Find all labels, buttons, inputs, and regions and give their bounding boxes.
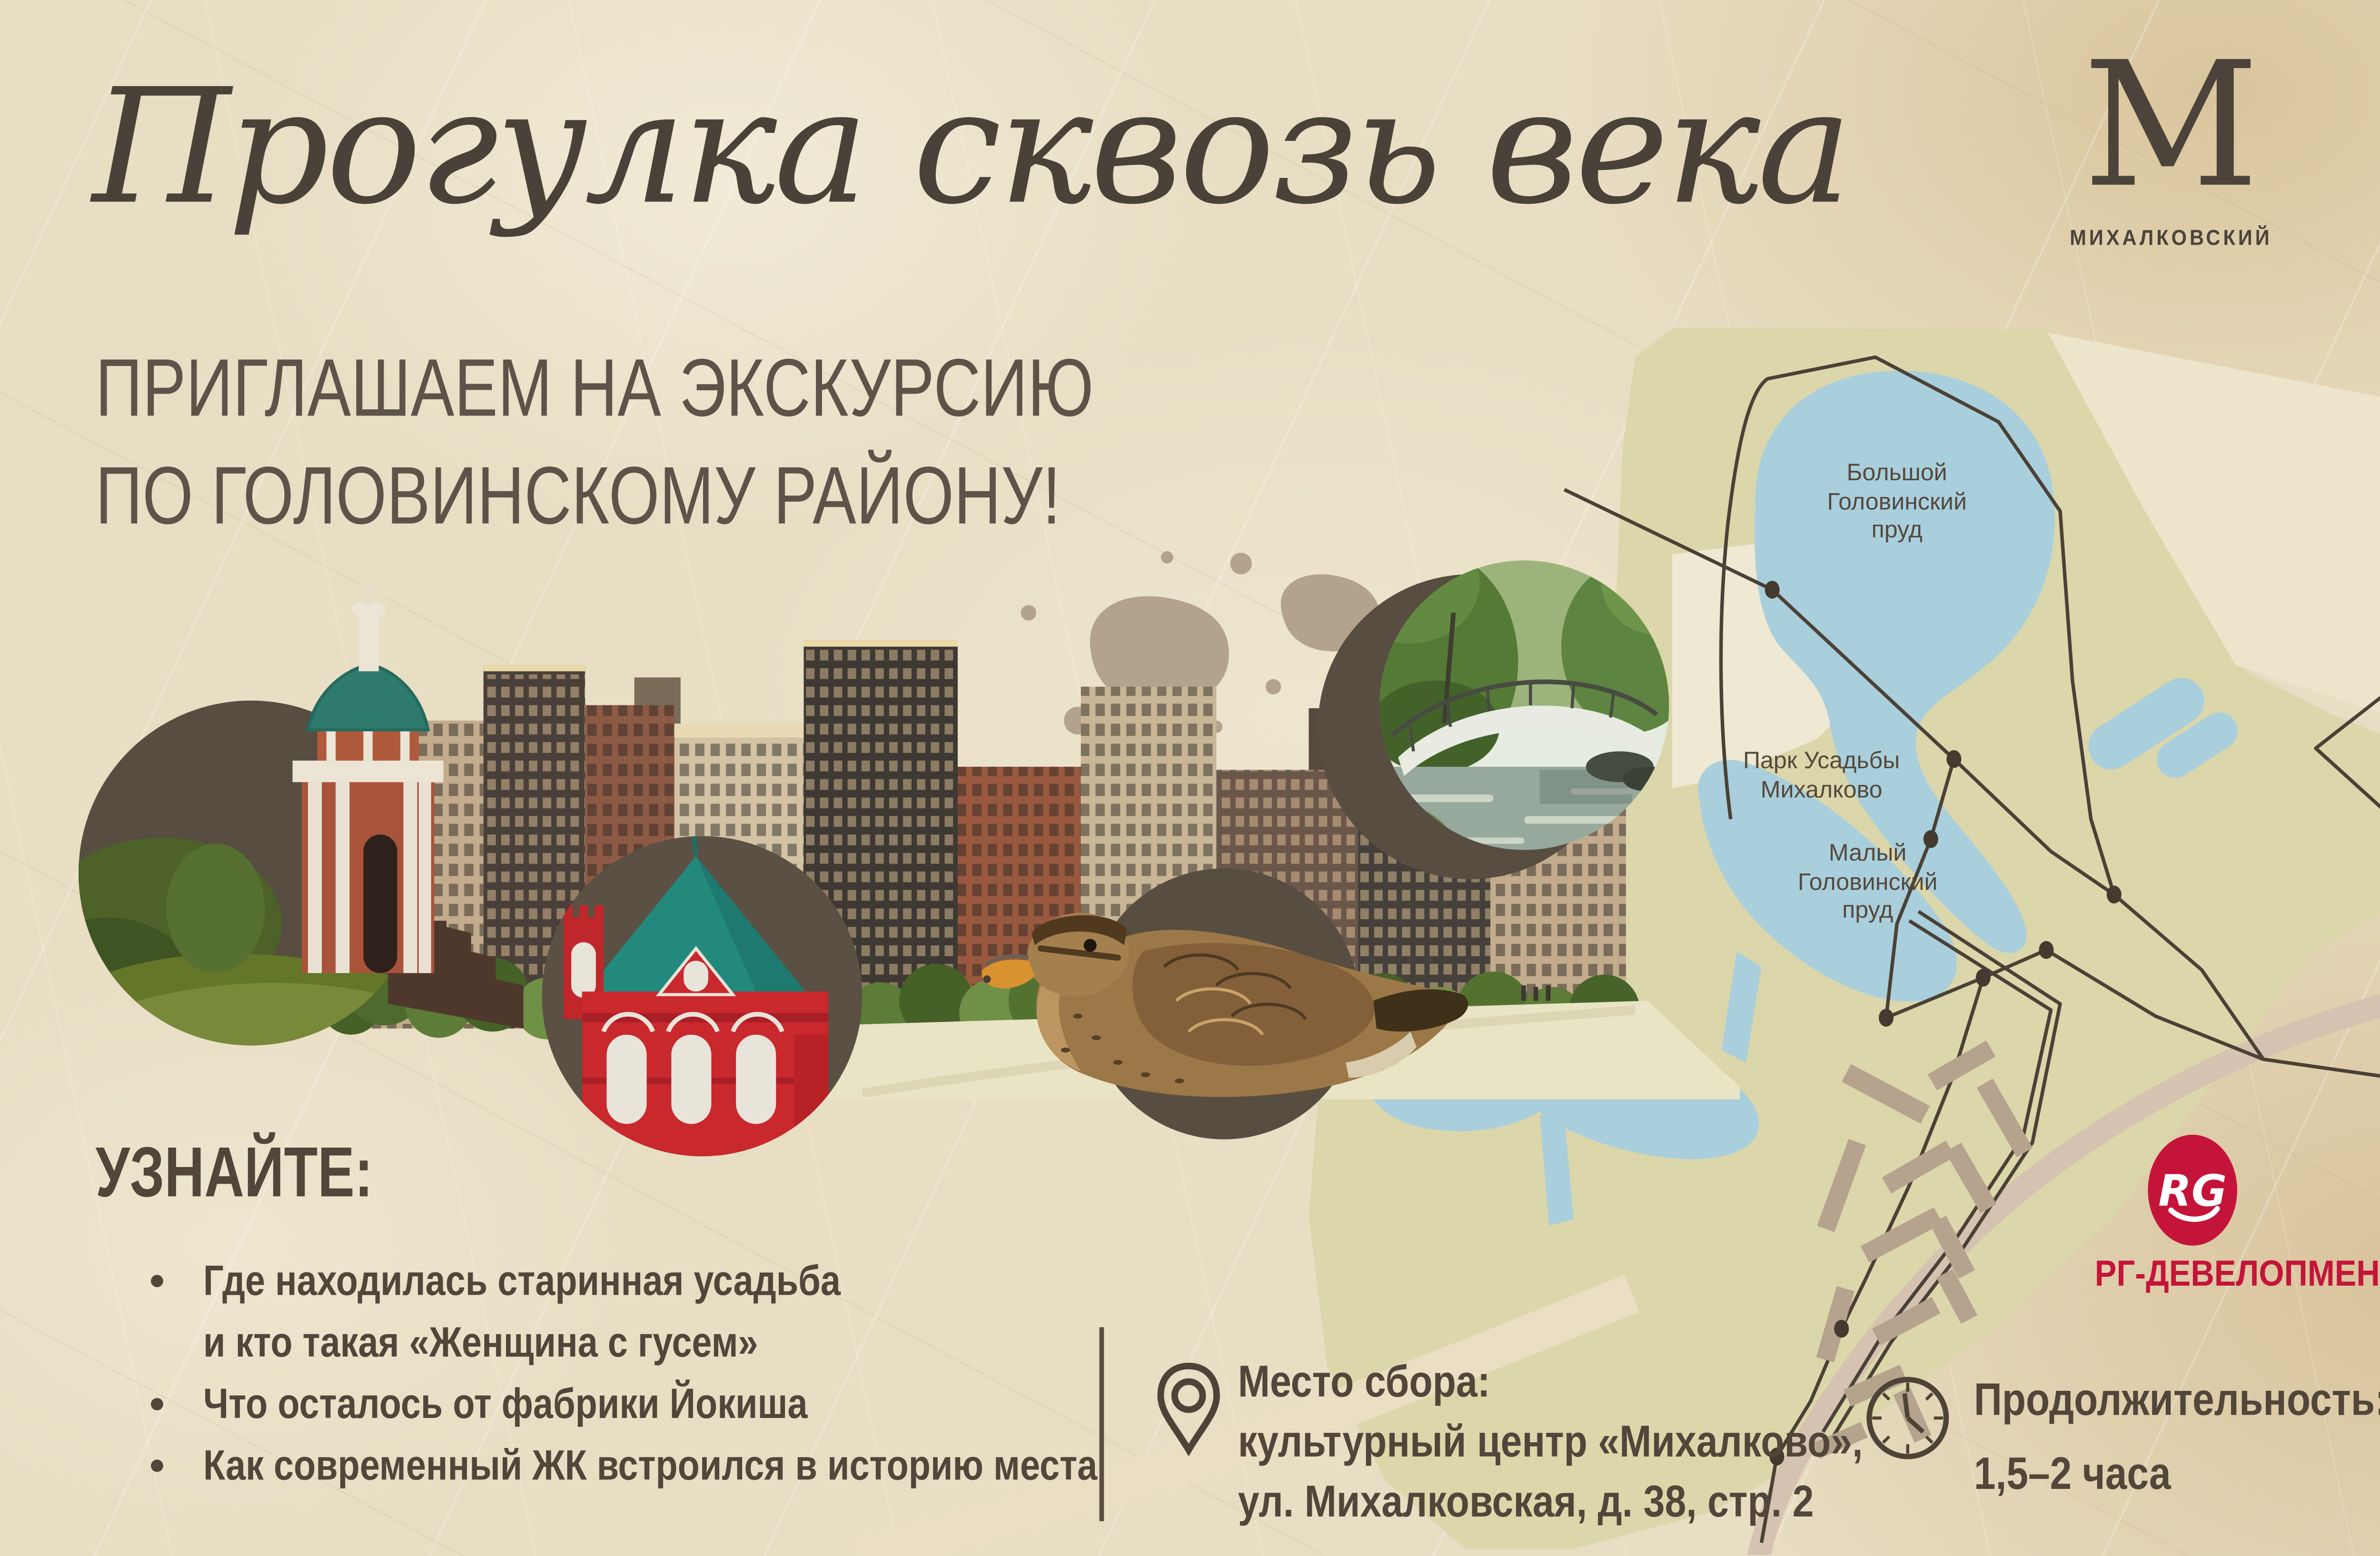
brand-logo: М МИХАЛКОВСКИЙ bbox=[2048, 40, 2294, 249]
pond-label-line: Головинский bbox=[1782, 489, 2013, 517]
bullet-dot bbox=[151, 1459, 163, 1472]
list-item: Как современный ЖК встроился в историю м… bbox=[148, 1435, 1164, 1497]
bullet-dot bbox=[151, 1275, 163, 1287]
footer-divider bbox=[1100, 1327, 1103, 1521]
park-label-line: Парк Усадьбы bbox=[1706, 748, 1937, 777]
list-item-text: Что осталось от фабрики Йокиша bbox=[203, 1373, 1020, 1435]
list-item-text: Где находилась старинная усадьба bbox=[203, 1250, 1020, 1312]
pond-label-line: пруд bbox=[1752, 898, 1983, 926]
list-item: Что осталось от фабрики Йокиша bbox=[148, 1373, 1164, 1435]
pond-label-line: Головинский bbox=[1752, 869, 1983, 898]
poster-title: Прогулка сквозь века bbox=[92, 65, 1817, 231]
park-label: Парк Усадьбы Михалково bbox=[1706, 748, 1937, 805]
clock-icon bbox=[1863, 1373, 1953, 1463]
developer-name-text: РГ-ДЕВЕЛОПМЕНТ bbox=[2095, 1253, 2358, 1295]
rg-logo: RG bbox=[2146, 1133, 2239, 1247]
subtitle-line-2: ПО ГОЛОВИНСКОМУ РАЙОНУ! bbox=[96, 443, 1094, 551]
list-item: Где находилась старинная усадьба и кто т… bbox=[148, 1250, 1164, 1374]
brand-name: МИХАЛКОВСКИЙ bbox=[2058, 225, 2284, 249]
m-letter: М bbox=[2048, 40, 2294, 212]
park-label-line: Михалково bbox=[1706, 777, 1937, 805]
meeting-title: Место сбора: bbox=[1238, 1353, 1863, 1413]
pond-label-bolshoy: Большой Головинский пруд bbox=[1782, 460, 2013, 546]
pond-label-line: Большой bbox=[1782, 460, 2013, 489]
meeting-line-1: культурный центр «Михалково», bbox=[1238, 1413, 1863, 1473]
learn-heading-text: УЗНАЙТЕ: bbox=[96, 1130, 373, 1213]
meeting-line-2: ул. Михалковская, д. 38, стр. 2 bbox=[1238, 1474, 1863, 1534]
list-item-text: Как современный ЖК встроился в историю м… bbox=[203, 1435, 1020, 1497]
developer-name: РГ-ДЕВЕЛОПМЕНТ bbox=[2080, 1253, 2373, 1295]
list-item-text: и кто такая «Женщина с гусем» bbox=[203, 1312, 1020, 1373]
meeting-block: Место сбора: культурный центр «Михалково… bbox=[1238, 1353, 1965, 1533]
duration-block: Продолжительность: 1,5–2 часа bbox=[1974, 1364, 2380, 1512]
bullet-dot bbox=[151, 1398, 163, 1410]
learn-list: Где находилась старинная усадьба и кто т… bbox=[148, 1250, 1164, 1497]
learn-heading: УЗНАЙТЕ: bbox=[96, 1130, 451, 1213]
pond-label-line: Малый bbox=[1752, 841, 1983, 869]
poster: Прогулка сквозь века М МИХАЛКОВСКИЙ ПРИГ… bbox=[0, 0, 2380, 1556]
duration-value: 1,5–2 часа bbox=[1974, 1438, 2380, 1512]
subtitle: ПРИГЛАШАЕМ НА ЭКСКУРСИЮ ПО ГОЛОВИНСКОМУ … bbox=[96, 336, 1343, 551]
pond-label-line: пруд bbox=[1782, 517, 2013, 546]
people bbox=[1521, 985, 1550, 1001]
duration-title: Продолжительность: bbox=[1974, 1364, 2380, 1438]
pond-label-maly: Малый Головинский пруд bbox=[1752, 841, 1983, 926]
subtitle-line-1: ПРИГЛАШАЕМ НА ЭКСКУРСИЮ bbox=[96, 336, 1094, 443]
location-pin-icon bbox=[1155, 1361, 1222, 1457]
